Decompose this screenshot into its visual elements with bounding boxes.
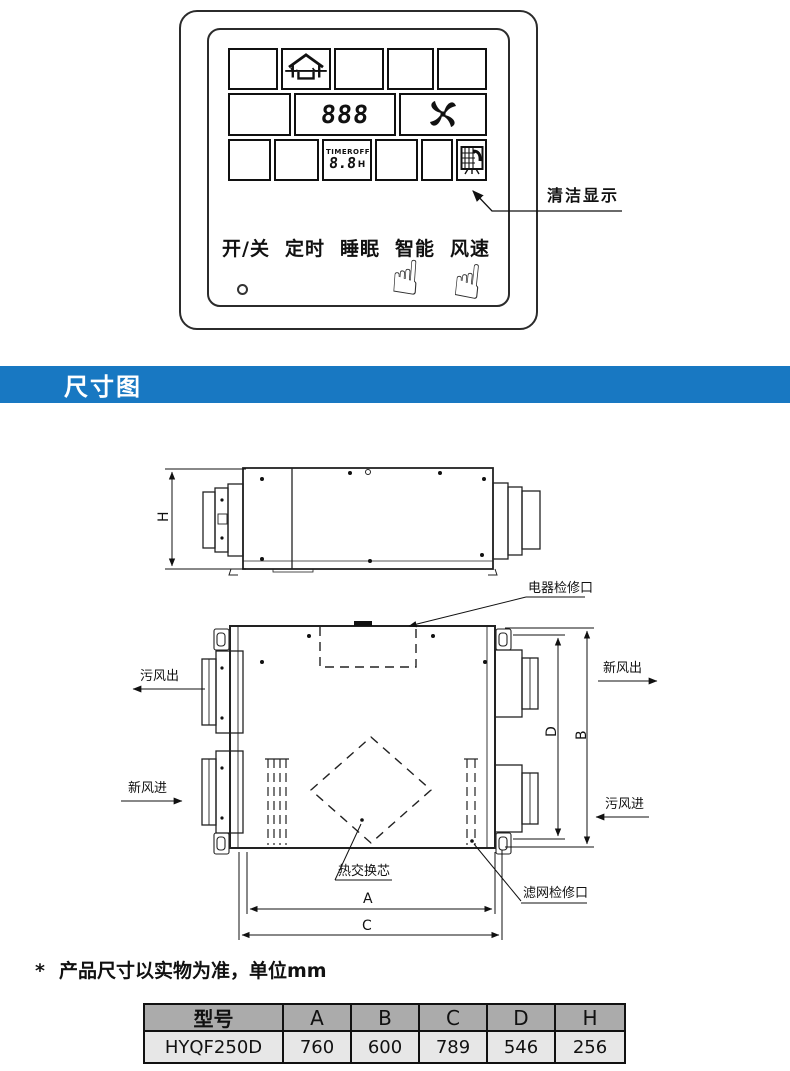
note-text: 产品尺寸以实物为准，单位mm [59,956,327,983]
spec-value-a: 760 [284,1032,352,1062]
label-filter-access: 滤网检修口 [523,886,588,901]
fan-speed-cell [399,93,487,135]
spec-value-c: 789 [420,1032,488,1062]
spec-header-b: B [352,1005,420,1032]
spec-value-b: 600 [352,1032,420,1062]
lcd-segment-blank [387,48,434,90]
dimension-diagram: H [0,430,790,955]
dim-d-label: D [544,726,560,737]
timer-cell: TIMER OFF 8.8 H [322,139,372,181]
house-ventilation-icon [281,48,331,90]
clean-annotation-label: 清洁显示 [547,182,619,206]
house-icon [285,52,327,86]
timer-unit: H [358,160,366,171]
lcd-segment-blank [334,48,384,90]
lcd-row-2: 888 [228,93,487,135]
spec-header-c: C [420,1005,488,1032]
lcd-mode-digits: 888 [294,93,396,135]
timer-digits: 8.8 [328,156,356,171]
section-banner: 尺寸图 [0,366,790,403]
label-fresh-air-out: 新风出 [603,660,642,676]
side-view [203,468,540,575]
spec-value-d: 546 [488,1032,556,1062]
lcd-segment-blank [375,139,418,181]
mode-digits-value: 888 [320,100,371,129]
note-asterisk: * [35,960,45,982]
panel-buttons: 开/关 定时 睡眠 智能 风速 [222,234,490,261]
spec-table-data-row: HYQF250D 760 600 789 546 256 [145,1032,624,1062]
label-stale-air-out: 污风出 [140,669,179,684]
spec-header-d: D [488,1005,556,1032]
dim-b-label: B [574,730,590,740]
dim-h-label: H [156,511,172,522]
product-page: 888 [0,0,790,1071]
lcd-segment-blank [228,93,291,135]
label-electrical-access: 电器检修口 [528,581,593,596]
spec-table: 型号 A B C D H HYQF250D 760 600 789 546 25… [143,1003,626,1064]
lcd-segment-blank [274,139,319,181]
label-stale-air-in: 污风进 [605,797,644,812]
timer-readout: 8.8 H [329,156,366,171]
spec-header-model: 型号 [145,1005,284,1032]
panel-button-power: 开/关 [222,234,270,261]
electrical-access-callout [409,597,585,626]
fan-icon [428,99,458,129]
spec-header-a: A [284,1005,352,1032]
panel-button-sleep: 睡眠 [340,234,380,261]
panel-button-timer: 定时 [285,234,325,261]
lcd-row-1 [228,48,487,90]
indicator-led [237,284,248,295]
spec-header-h: H [556,1005,624,1032]
dimension-note: * 产品尺寸以实物为准，单位mm [35,956,327,983]
dim-a-label: A [363,891,373,907]
label-heat-exchange-core: 热交换芯 [338,863,390,879]
label-fresh-air-in: 新风进 [128,780,167,796]
spec-table-header-row: 型号 A B C D H [145,1005,624,1032]
top-view [202,621,538,854]
lcd-segment-blank [228,48,278,90]
dim-c-label: C [362,918,372,934]
spec-value-h: 256 [556,1032,624,1062]
pointing-hand-icon: ☝ [389,253,422,303]
section-banner-title: 尺寸图 [64,367,142,402]
spec-value-model: HYQF250D [145,1032,284,1062]
lcd-segment-blank [228,139,271,181]
pointing-hand-icon: ☝ [451,257,485,308]
lcd-segment-blank [437,48,487,90]
